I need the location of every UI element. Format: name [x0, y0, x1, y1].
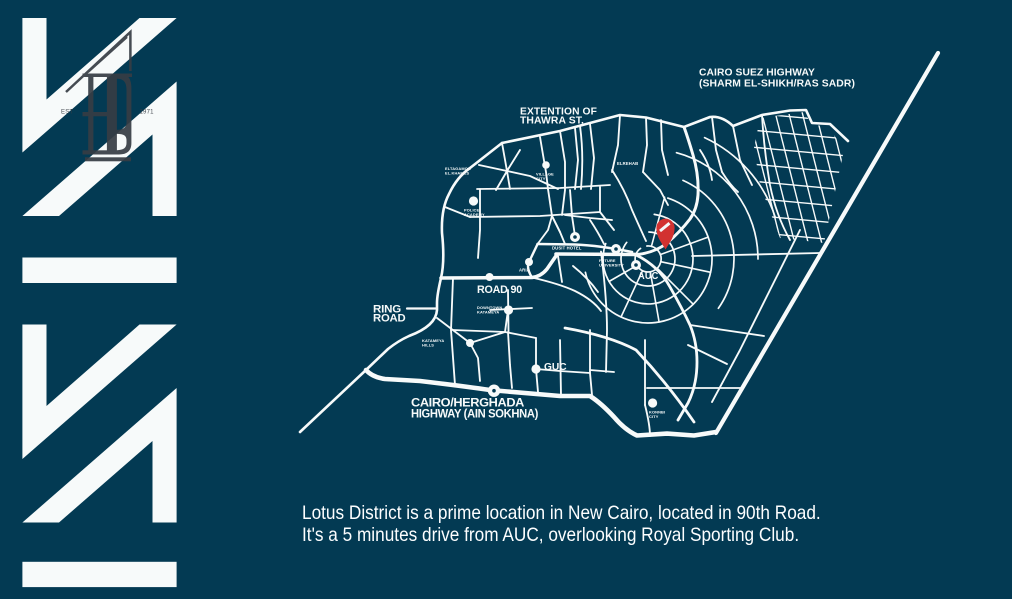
svg-text:EST: EST: [61, 110, 73, 116]
svg-text:CAIRO/HERGHADAHIGHWAY (AIN SOK: CAIRO/HERGHADAHIGHWAY (AIN SOKHNA): [411, 398, 539, 421]
svg-text:DUSIT HOTEL: DUSIT HOTEL: [552, 246, 582, 251]
svg-text:1971: 1971: [140, 110, 155, 116]
svg-text:ARIA: ARIA: [519, 268, 530, 273]
svg-text:ELTAGAMOAEL.KHAMES: ELTAGAMOAEL.KHAMES: [445, 166, 471, 176]
svg-text:RINGROAD: RINGROAD: [373, 304, 406, 325]
svg-text:ROAD 90: ROAD 90: [477, 284, 522, 296]
svg-text:AUC: AUC: [638, 271, 659, 282]
svg-text:DOWNTOWNKATAMEYA: DOWNTOWNKATAMEYA: [477, 305, 502, 315]
svg-text:ELREHAB: ELREHAB: [617, 161, 638, 166]
svg-text:GUC: GUC: [544, 362, 567, 373]
